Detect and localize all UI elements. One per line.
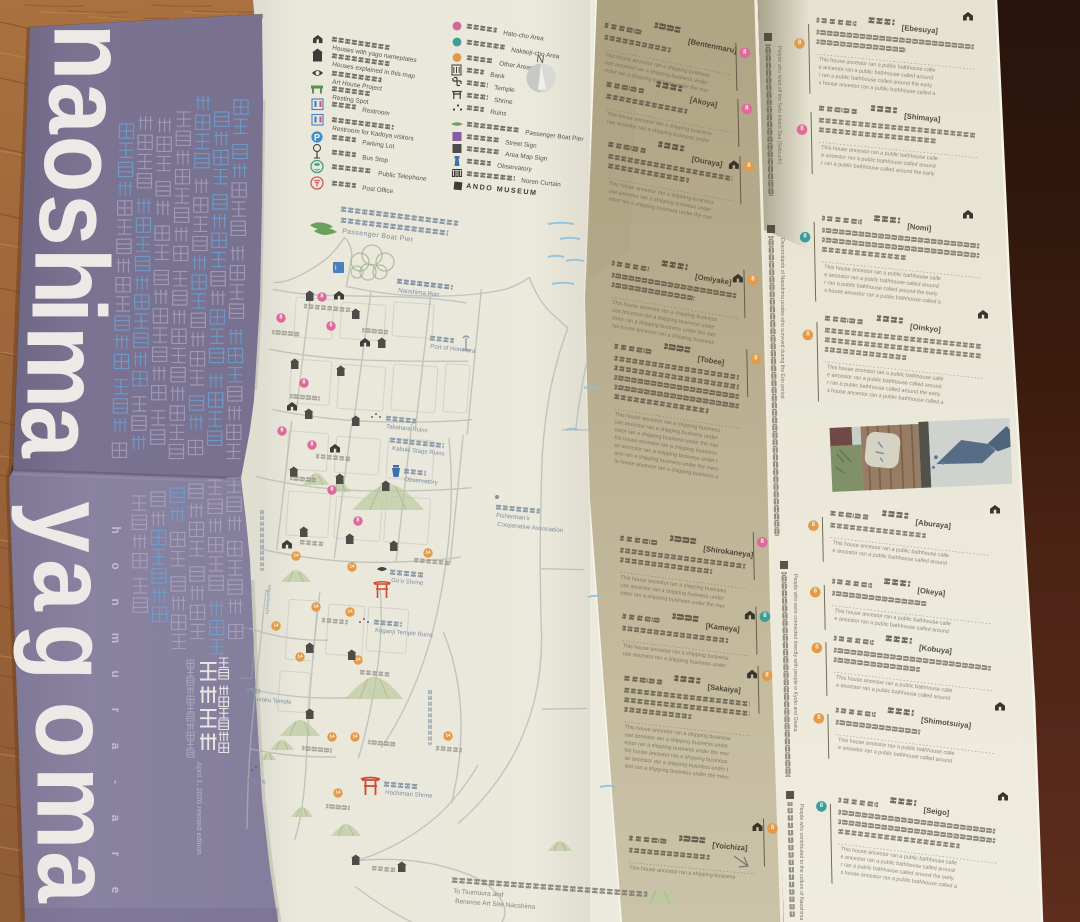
svg-text:a: a bbox=[0, 406, 117, 458]
svg-text:14: 14 bbox=[349, 563, 355, 568]
svg-text:n: n bbox=[109, 598, 123, 605]
svg-text:o: o bbox=[109, 562, 123, 569]
svg-text:8: 8 bbox=[357, 517, 360, 523]
svg-text:14: 14 bbox=[352, 733, 358, 738]
svg-text:h: h bbox=[109, 526, 123, 533]
svg-text:8: 8 bbox=[303, 379, 306, 385]
svg-text:e: e bbox=[109, 887, 123, 894]
svg-text:14: 14 bbox=[293, 552, 299, 557]
svg-text:i: i bbox=[10, 297, 128, 323]
svg-text:r: r bbox=[109, 852, 123, 857]
svg-text:m: m bbox=[109, 633, 123, 644]
svg-text:14: 14 bbox=[313, 603, 319, 608]
svg-text:14: 14 bbox=[347, 608, 353, 613]
svg-text:u: u bbox=[109, 670, 123, 677]
svg-text:People who contributed to the: People who contributed to the culture of… bbox=[798, 804, 804, 920]
svg-text:a: a bbox=[27, 82, 145, 134]
svg-text:14: 14 bbox=[297, 653, 303, 658]
svg-text:a: a bbox=[109, 815, 123, 822]
svg-text:a: a bbox=[16, 851, 134, 903]
svg-text:14: 14 bbox=[445, 732, 451, 737]
svg-text:14: 14 bbox=[425, 549, 431, 554]
svg-text:8: 8 bbox=[321, 293, 324, 299]
svg-text:N: N bbox=[536, 53, 545, 66]
svg-text:Descendants of Naoshima pirate: Descendants of Naoshima pirates who surv… bbox=[779, 238, 785, 399]
svg-text:14: 14 bbox=[273, 622, 279, 627]
svg-text:8: 8 bbox=[281, 427, 284, 433]
svg-text:h: h bbox=[13, 248, 131, 305]
svg-text:r: r bbox=[109, 708, 123, 713]
svg-text:8: 8 bbox=[331, 486, 334, 492]
svg-text:People who were connected dire: People who were connected directly with … bbox=[792, 574, 798, 732]
svg-text:-: - bbox=[109, 780, 123, 784]
svg-text:o: o bbox=[23, 136, 141, 193]
svg-text:14: 14 bbox=[355, 656, 361, 661]
svg-text:P: P bbox=[314, 133, 320, 143]
svg-text:8: 8 bbox=[330, 322, 333, 328]
svg-text:n: n bbox=[32, 24, 150, 81]
svg-text:8: 8 bbox=[280, 314, 283, 320]
svg-text:April 1, 2020 revised edition: April 1, 2020 revised edition bbox=[195, 762, 204, 855]
svg-text:m: m bbox=[5, 326, 123, 409]
svg-text:14: 14 bbox=[329, 733, 335, 738]
svg-text:a: a bbox=[109, 743, 123, 750]
svg-text:People who lived off the Seto: People who lived off the Seto Inland Sea… bbox=[776, 46, 782, 165]
svg-text:14: 14 bbox=[335, 789, 341, 794]
svg-text:8: 8 bbox=[311, 441, 314, 447]
